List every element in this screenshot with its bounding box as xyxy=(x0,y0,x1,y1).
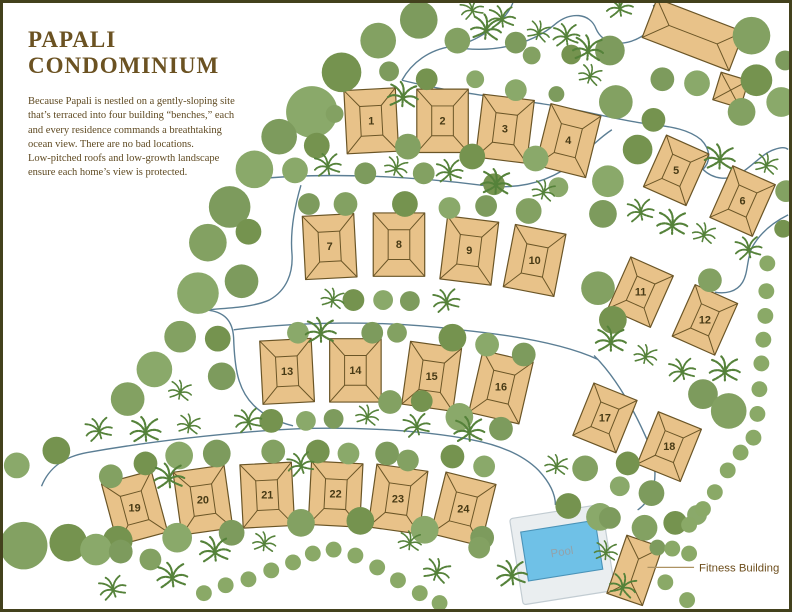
tree-icon xyxy=(225,264,259,298)
tree-icon xyxy=(261,119,297,155)
palm-tree-icon xyxy=(156,561,189,589)
building-number: 13 xyxy=(281,366,293,378)
palm-tree-icon xyxy=(458,3,486,21)
tree-icon xyxy=(468,537,490,559)
palm-tree-icon xyxy=(130,416,162,443)
tree-icon xyxy=(324,409,344,429)
tree-icon xyxy=(475,195,497,217)
tree-icon xyxy=(459,144,485,170)
tree-icon xyxy=(649,540,665,556)
tree-icon xyxy=(379,61,399,81)
tree-icon xyxy=(236,219,262,245)
building-7: 7 xyxy=(302,214,357,280)
tree-icon xyxy=(80,534,112,566)
tree-icon xyxy=(4,453,30,479)
building-18: 18 xyxy=(637,412,701,482)
shrub-icon xyxy=(196,585,212,601)
palm-tree-icon xyxy=(605,3,634,18)
building-number: 14 xyxy=(349,365,361,377)
tree-icon xyxy=(632,515,658,541)
building-number: 20 xyxy=(197,495,209,507)
title-line-1: PAPALI xyxy=(28,27,116,52)
tree-icon xyxy=(400,3,438,39)
building-number: 24 xyxy=(457,503,469,515)
shrub-icon xyxy=(369,559,385,575)
tree-icon xyxy=(642,108,666,132)
building-14: 14 xyxy=(330,339,381,402)
tree-icon xyxy=(616,452,640,476)
page-title: PAPALICONDOMINIUM xyxy=(28,27,254,79)
building-number: 11 xyxy=(635,287,647,299)
title-line-2: CONDOMINIUM xyxy=(28,53,219,78)
palm-tree-icon xyxy=(544,454,569,476)
tree-icon xyxy=(137,352,173,388)
tree-icon xyxy=(416,68,438,90)
palm-tree-icon xyxy=(355,404,381,427)
palm-tree-icon xyxy=(577,62,604,87)
shrub-icon xyxy=(733,445,749,461)
tree-icon xyxy=(177,272,219,314)
tree-icon xyxy=(296,411,316,431)
tree-icon xyxy=(361,322,383,344)
palm-tree-icon xyxy=(177,413,202,435)
building-number: 16 xyxy=(495,382,507,394)
shrub-icon xyxy=(757,308,773,324)
shrub-icon xyxy=(758,283,774,299)
palm-tree-icon xyxy=(401,411,432,439)
tree-icon xyxy=(439,324,467,352)
shrub-icon xyxy=(241,571,257,587)
tree-icon xyxy=(354,162,376,184)
palm-tree-icon xyxy=(487,4,516,29)
building-number: 1 xyxy=(368,115,374,127)
tree-icon xyxy=(3,522,47,570)
tree-icon xyxy=(711,393,747,429)
tree-icon xyxy=(489,417,513,441)
palm-tree-icon xyxy=(470,13,502,41)
building-number: 17 xyxy=(599,412,611,424)
shrub-icon xyxy=(285,555,301,571)
tree-icon xyxy=(373,290,393,310)
tree-icon xyxy=(441,445,465,469)
tree-icon xyxy=(164,321,196,353)
tree-icon xyxy=(548,86,564,102)
building-number: 22 xyxy=(330,489,342,501)
palm-tree-icon xyxy=(320,287,346,310)
tree-icon xyxy=(334,192,358,216)
tree-icon xyxy=(343,289,365,311)
palm-tree-icon xyxy=(633,343,659,366)
building-8: 8 xyxy=(373,213,424,276)
tree-icon xyxy=(395,134,421,160)
building-number: 3 xyxy=(502,123,508,135)
building-number: 6 xyxy=(740,196,746,208)
shrub-icon xyxy=(218,577,234,593)
tree-icon xyxy=(523,146,549,172)
building-number: 8 xyxy=(396,239,402,251)
intro-paragraph-2: Low-pitched roofs and low-growth landsca… xyxy=(28,152,242,181)
tree-icon xyxy=(650,67,674,91)
tree-icon xyxy=(775,180,789,202)
tree-icon xyxy=(205,326,231,352)
tree-icon xyxy=(322,53,362,93)
palm-tree-icon xyxy=(96,572,128,601)
tree-icon xyxy=(400,291,420,311)
building-number: 10 xyxy=(529,255,541,267)
tree-icon xyxy=(99,464,123,488)
shrub-icon xyxy=(755,332,771,348)
building-number: 4 xyxy=(565,135,571,147)
tree-icon xyxy=(360,23,396,59)
tree-icon xyxy=(766,87,789,117)
tree-icon xyxy=(392,191,418,217)
palm-tree-icon xyxy=(434,157,464,183)
building-number: 5 xyxy=(673,165,679,177)
tree-icon xyxy=(111,382,145,416)
tree-icon xyxy=(162,523,192,553)
tree-icon xyxy=(610,476,630,496)
shrub-icon xyxy=(657,574,673,590)
tree-icon xyxy=(338,443,360,465)
tree-icon xyxy=(466,70,484,88)
building-9: 9 xyxy=(440,216,499,285)
building-12: 12 xyxy=(672,285,737,355)
shrub-icon xyxy=(412,585,428,601)
tree-icon xyxy=(261,440,285,464)
tree-icon xyxy=(134,452,158,476)
palm-tree-icon xyxy=(753,151,780,175)
page-header: PAPALICONDOMINIUM Because Papali is nest… xyxy=(28,27,254,181)
tree-icon xyxy=(306,440,330,464)
palm-tree-icon xyxy=(168,379,194,401)
tree-icon xyxy=(505,79,527,101)
tree-icon xyxy=(639,480,665,506)
tree-icon xyxy=(378,390,402,414)
palm-tree-icon xyxy=(198,535,230,563)
shrub-icon xyxy=(707,484,723,500)
shrub-icon xyxy=(681,517,697,533)
shrub-icon xyxy=(347,548,363,564)
shrub-icon xyxy=(695,501,711,517)
tree-icon xyxy=(523,47,541,65)
fitness-label: Fitness Building xyxy=(699,562,779,574)
upper-building xyxy=(642,3,744,71)
tree-icon xyxy=(298,193,320,215)
tree-icon xyxy=(411,516,439,544)
tree-icon xyxy=(512,343,536,367)
building-number: 12 xyxy=(699,314,711,326)
building-1: 1 xyxy=(344,88,399,154)
tree-icon xyxy=(623,135,653,165)
palm-tree-icon xyxy=(691,221,718,245)
tree-icon xyxy=(505,32,527,54)
tree-icon xyxy=(728,98,756,126)
shrub-icon xyxy=(720,462,736,478)
intro-paragraph-1: Because Papali is nestled on a gently-sl… xyxy=(28,95,242,152)
palm-tree-icon xyxy=(252,531,277,552)
tree-icon xyxy=(774,220,789,238)
palm-tree-icon xyxy=(657,210,687,235)
palm-tree-icon xyxy=(421,556,453,585)
shrub-icon xyxy=(679,592,695,608)
shrub-icon xyxy=(305,546,321,562)
shrub-icon xyxy=(664,541,680,557)
tree-icon xyxy=(572,456,598,482)
tree-icon xyxy=(375,442,399,466)
tree-icon xyxy=(326,105,344,123)
palm-tree-icon xyxy=(710,356,740,381)
building-13: 13 xyxy=(260,338,315,404)
tree-icon xyxy=(109,540,133,564)
fitness-callout: Fitness Building xyxy=(648,562,780,574)
tree-icon xyxy=(287,509,315,537)
tree-icon xyxy=(599,507,621,529)
building-number: 7 xyxy=(327,241,333,253)
building-number: 2 xyxy=(440,115,446,127)
building-2: 2 xyxy=(417,89,468,152)
building-10: 10 xyxy=(503,224,566,296)
shrub-icon xyxy=(753,356,769,372)
shrub-icon xyxy=(326,542,342,558)
building-number: 19 xyxy=(129,502,141,514)
tree-icon xyxy=(516,198,542,224)
building-number: 21 xyxy=(261,490,273,502)
tree-icon xyxy=(698,268,722,292)
tree-icon xyxy=(592,165,624,197)
tree-icon xyxy=(346,507,374,535)
tree-icon xyxy=(589,200,617,228)
tree-icon xyxy=(411,390,433,412)
tree-icon xyxy=(475,333,499,357)
tree-icon xyxy=(259,409,283,433)
tree-icon xyxy=(741,64,773,96)
building-6: 6 xyxy=(710,166,775,236)
tree-icon xyxy=(555,493,581,519)
tree-icon xyxy=(684,70,710,96)
shrub-icon xyxy=(681,546,697,562)
building-17: 17 xyxy=(573,383,637,453)
tree-icon xyxy=(413,162,435,184)
tree-icon xyxy=(473,456,495,478)
building-number: 9 xyxy=(466,245,472,257)
tree-icon xyxy=(445,28,471,54)
tree-icon xyxy=(581,271,615,305)
palm-tree-icon xyxy=(153,462,185,489)
tree-icon xyxy=(189,224,227,262)
tree-icon xyxy=(775,51,789,71)
shrub-icon xyxy=(751,381,767,397)
palm-tree-icon xyxy=(596,327,626,352)
tree-icon xyxy=(387,323,407,343)
palm-tree-icon xyxy=(551,22,580,47)
building-number: 15 xyxy=(426,371,438,383)
building-21: 21 xyxy=(240,462,295,528)
shrub-icon xyxy=(390,572,406,588)
shrub-icon xyxy=(759,256,775,272)
shrub-icon xyxy=(432,595,448,609)
tree-icon xyxy=(282,157,308,183)
palm-tree-icon xyxy=(82,414,114,442)
building-number: 23 xyxy=(392,494,404,506)
tree-icon xyxy=(43,437,71,465)
shrub-icon xyxy=(263,562,279,578)
tree-icon xyxy=(287,322,309,344)
shrub-icon xyxy=(746,430,762,446)
palm-tree-icon xyxy=(495,558,528,587)
palm-tree-icon xyxy=(666,355,697,382)
tree-icon xyxy=(203,440,231,468)
building-5: 5 xyxy=(643,135,708,205)
shrub-icon xyxy=(750,406,766,422)
site-plan-page: PAPALICONDOMINIUM Because Papali is nest… xyxy=(0,0,792,612)
tree-icon xyxy=(208,362,236,390)
tree-icon xyxy=(304,133,330,159)
palm-tree-icon xyxy=(430,286,461,314)
palm-tree-icon xyxy=(625,196,655,223)
tree-icon xyxy=(397,450,419,472)
tree-icon xyxy=(599,85,633,119)
building-number: 18 xyxy=(663,441,675,453)
tree-icon xyxy=(439,197,461,219)
tree-icon xyxy=(733,17,771,55)
